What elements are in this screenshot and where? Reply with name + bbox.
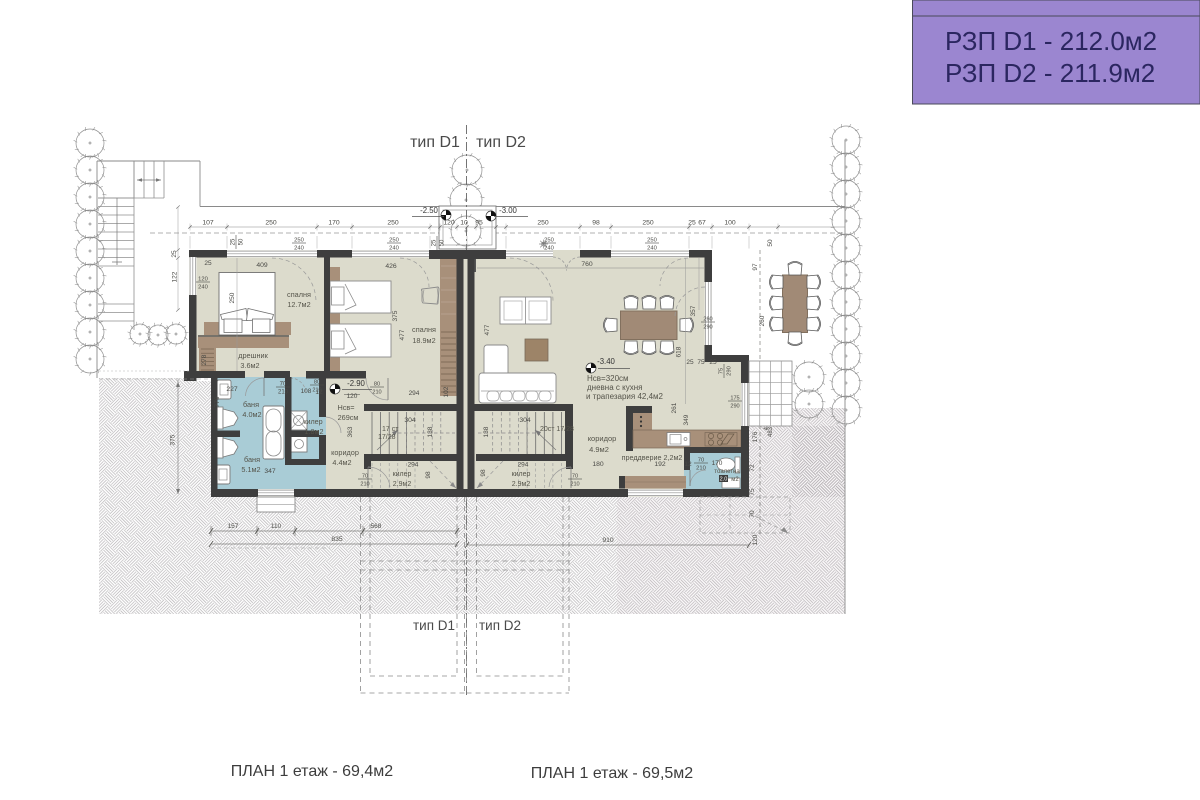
svg-text:95: 95	[475, 220, 483, 227]
svg-text:75: 75	[697, 359, 705, 366]
svg-text:240: 240	[647, 246, 657, 252]
svg-text:477: 477	[399, 329, 406, 340]
svg-text:483: 483	[768, 426, 774, 437]
svg-text:25: 25	[432, 239, 438, 246]
svg-text:70: 70	[280, 382, 287, 388]
svg-text:107: 107	[202, 220, 214, 227]
svg-text:2.9м2: 2.9м2	[393, 481, 412, 488]
svg-text:5.1м2: 5.1м2	[241, 465, 260, 474]
svg-text:80: 80	[314, 380, 320, 386]
svg-text:108: 108	[301, 388, 312, 395]
svg-text:25: 25	[709, 359, 717, 366]
svg-text:ПЛАН 1 етаж - 69,5м2: ПЛАН 1 етаж - 69,5м2	[531, 765, 693, 782]
svg-text:РЗП D1 - 212.0м2: РЗП D1 - 212.0м2	[945, 26, 1157, 56]
svg-text:98: 98	[592, 220, 600, 227]
svg-text:и трапезария 42,4м2: и трапезария 42,4м2	[586, 392, 664, 401]
svg-text:618: 618	[676, 346, 683, 357]
svg-text:дневна с кухня: дневна с кухня	[587, 383, 642, 392]
svg-text:коридор: коридор	[331, 448, 359, 457]
svg-text:17 ст: 17 ст	[382, 426, 399, 433]
svg-text:250: 250	[294, 238, 304, 244]
svg-text:278: 278	[201, 354, 208, 365]
svg-text:120: 120	[443, 220, 455, 227]
svg-text:килер: килер	[393, 471, 412, 478]
svg-text:2.0: 2.0	[720, 477, 728, 483]
svg-text:568: 568	[371, 523, 382, 530]
svg-text:250: 250	[229, 292, 236, 303]
svg-text:70: 70	[362, 474, 368, 480]
svg-text:25: 25	[204, 260, 212, 267]
svg-text:4.0м2: 4.0м2	[242, 410, 261, 419]
svg-text:70: 70	[572, 474, 578, 480]
svg-text:-2.90: -2.90	[347, 379, 365, 388]
svg-text:170: 170	[328, 220, 340, 227]
svg-text:70: 70	[698, 458, 704, 464]
svg-text:18.9м2: 18.9м2	[412, 336, 435, 345]
svg-text:-3.40: -3.40	[597, 357, 615, 366]
svg-text:97: 97	[752, 263, 759, 271]
svg-text:98: 98	[425, 471, 432, 479]
svg-text:294: 294	[408, 462, 419, 469]
svg-text:тип D2: тип D2	[476, 134, 526, 151]
svg-text:Нсв=320см: Нсв=320см	[587, 374, 629, 383]
svg-text:357: 357	[690, 305, 697, 316]
svg-text:РЗП D2 - 211.9м2: РЗП D2 - 211.9м2	[945, 58, 1155, 88]
svg-text:110: 110	[271, 523, 282, 530]
svg-text:240: 240	[198, 285, 208, 291]
svg-text:тоалетна: тоалетна	[714, 469, 740, 475]
svg-text:180: 180	[592, 461, 604, 468]
svg-text:25: 25	[686, 359, 694, 366]
svg-text:25: 25	[688, 220, 696, 227]
svg-text:363: 363	[347, 426, 354, 437]
svg-text:776: 776	[214, 396, 221, 407]
svg-text:50: 50	[440, 239, 446, 246]
svg-text:-3.00: -3.00	[499, 206, 517, 215]
svg-text:спалня: спалня	[287, 290, 311, 299]
svg-text:210: 210	[696, 466, 706, 472]
svg-text:375: 375	[170, 434, 177, 445]
svg-text:294: 294	[409, 390, 420, 397]
svg-text:72: 72	[749, 464, 756, 472]
svg-text:50: 50	[767, 239, 774, 247]
svg-text:760: 760	[581, 261, 593, 268]
svg-text:290: 290	[727, 366, 733, 376]
svg-text:227: 227	[226, 386, 238, 393]
svg-text:120: 120	[198, 277, 208, 283]
svg-text:25: 25	[171, 250, 178, 258]
svg-text:75: 75	[749, 488, 756, 496]
svg-text:дрешник: дрешник	[238, 351, 268, 360]
svg-text:коридор: коридор	[588, 434, 617, 443]
svg-text:240: 240	[544, 246, 554, 252]
svg-text:25: 25	[231, 238, 237, 245]
svg-text:тип D1: тип D1	[413, 618, 455, 633]
svg-text:250: 250	[387, 220, 399, 227]
svg-text:м2: м2	[731, 477, 739, 483]
svg-text:138: 138	[427, 426, 434, 437]
svg-text:250: 250	[544, 238, 554, 244]
svg-text:12.7м2: 12.7м2	[287, 300, 310, 309]
svg-text:килер: килер	[512, 471, 531, 478]
svg-text:ПЛАН 1 етаж - 69,4м2: ПЛАН 1 етаж - 69,4м2	[231, 763, 393, 780]
svg-text:250: 250	[537, 220, 549, 227]
svg-text:тип D2: тип D2	[479, 618, 521, 633]
svg-text:210: 210	[312, 388, 321, 394]
svg-text:17/28: 17/28	[378, 434, 396, 441]
svg-text:80: 80	[374, 382, 380, 388]
svg-text:98: 98	[480, 469, 487, 477]
svg-text:175: 175	[730, 396, 739, 402]
svg-text:176: 176	[752, 431, 759, 442]
svg-text:170: 170	[712, 460, 723, 467]
svg-text:261: 261	[671, 402, 678, 413]
svg-text:210: 210	[278, 390, 289, 396]
svg-text:157: 157	[228, 523, 239, 530]
svg-text:10: 10	[460, 220, 468, 227]
svg-text:409: 409	[256, 262, 268, 269]
svg-text:269см: 269см	[338, 413, 359, 422]
svg-text:120: 120	[347, 393, 358, 400]
svg-text:304: 304	[404, 417, 416, 424]
svg-text:4.4м2: 4.4м2	[332, 458, 351, 467]
svg-text:250: 250	[389, 238, 399, 244]
svg-text:100: 100	[724, 220, 736, 227]
svg-text:баня: баня	[244, 455, 260, 464]
svg-text:210: 210	[360, 482, 369, 488]
svg-text:304: 304	[519, 417, 531, 424]
svg-text:75: 75	[719, 368, 725, 374]
svg-text:240: 240	[389, 246, 399, 252]
svg-text:260: 260	[703, 317, 712, 323]
svg-text:347: 347	[264, 468, 276, 475]
svg-text:910: 910	[602, 537, 614, 544]
svg-text:260: 260	[759, 315, 766, 326]
svg-text:250: 250	[647, 238, 657, 244]
svg-text:835: 835	[331, 536, 343, 543]
svg-text:240: 240	[294, 246, 304, 252]
svg-text:баня: баня	[243, 400, 259, 409]
svg-text:102: 102	[443, 386, 450, 397]
svg-text:210: 210	[570, 482, 579, 488]
svg-text:192: 192	[654, 461, 666, 468]
svg-text:375: 375	[392, 310, 399, 321]
svg-text:290: 290	[703, 325, 712, 331]
svg-text:122: 122	[172, 271, 179, 282]
svg-text:спалня: спалня	[412, 325, 436, 334]
svg-text:килер: килер	[303, 417, 322, 426]
svg-text:426: 426	[385, 263, 397, 270]
svg-text:67: 67	[698, 220, 706, 227]
svg-text:477: 477	[484, 324, 491, 335]
svg-text:1.8м2: 1.8м2	[305, 427, 324, 436]
svg-text:тип D1: тип D1	[410, 134, 460, 151]
svg-text:250: 250	[265, 220, 277, 227]
svg-text:349: 349	[683, 414, 690, 425]
svg-text:2.9м2: 2.9м2	[512, 481, 531, 488]
svg-text:-2.50: -2.50	[420, 206, 438, 215]
svg-text:3.6м2: 3.6м2	[240, 361, 259, 370]
svg-text:138: 138	[483, 426, 490, 437]
svg-text:50: 50	[239, 238, 245, 245]
svg-text:210: 210	[372, 390, 381, 396]
svg-text:4.9м2: 4.9м2	[589, 445, 609, 454]
svg-text:120: 120	[752, 534, 759, 545]
svg-text:250: 250	[642, 220, 654, 227]
svg-text:290: 290	[730, 404, 739, 410]
svg-text:20ст 17/28: 20ст 17/28	[540, 426, 574, 433]
svg-text:294: 294	[518, 462, 529, 469]
svg-text:12: 12	[684, 461, 692, 468]
svg-text:Нсв=: Нсв=	[337, 403, 354, 412]
svg-text:преддверие 2,2м2: преддверие 2,2м2	[622, 453, 683, 462]
